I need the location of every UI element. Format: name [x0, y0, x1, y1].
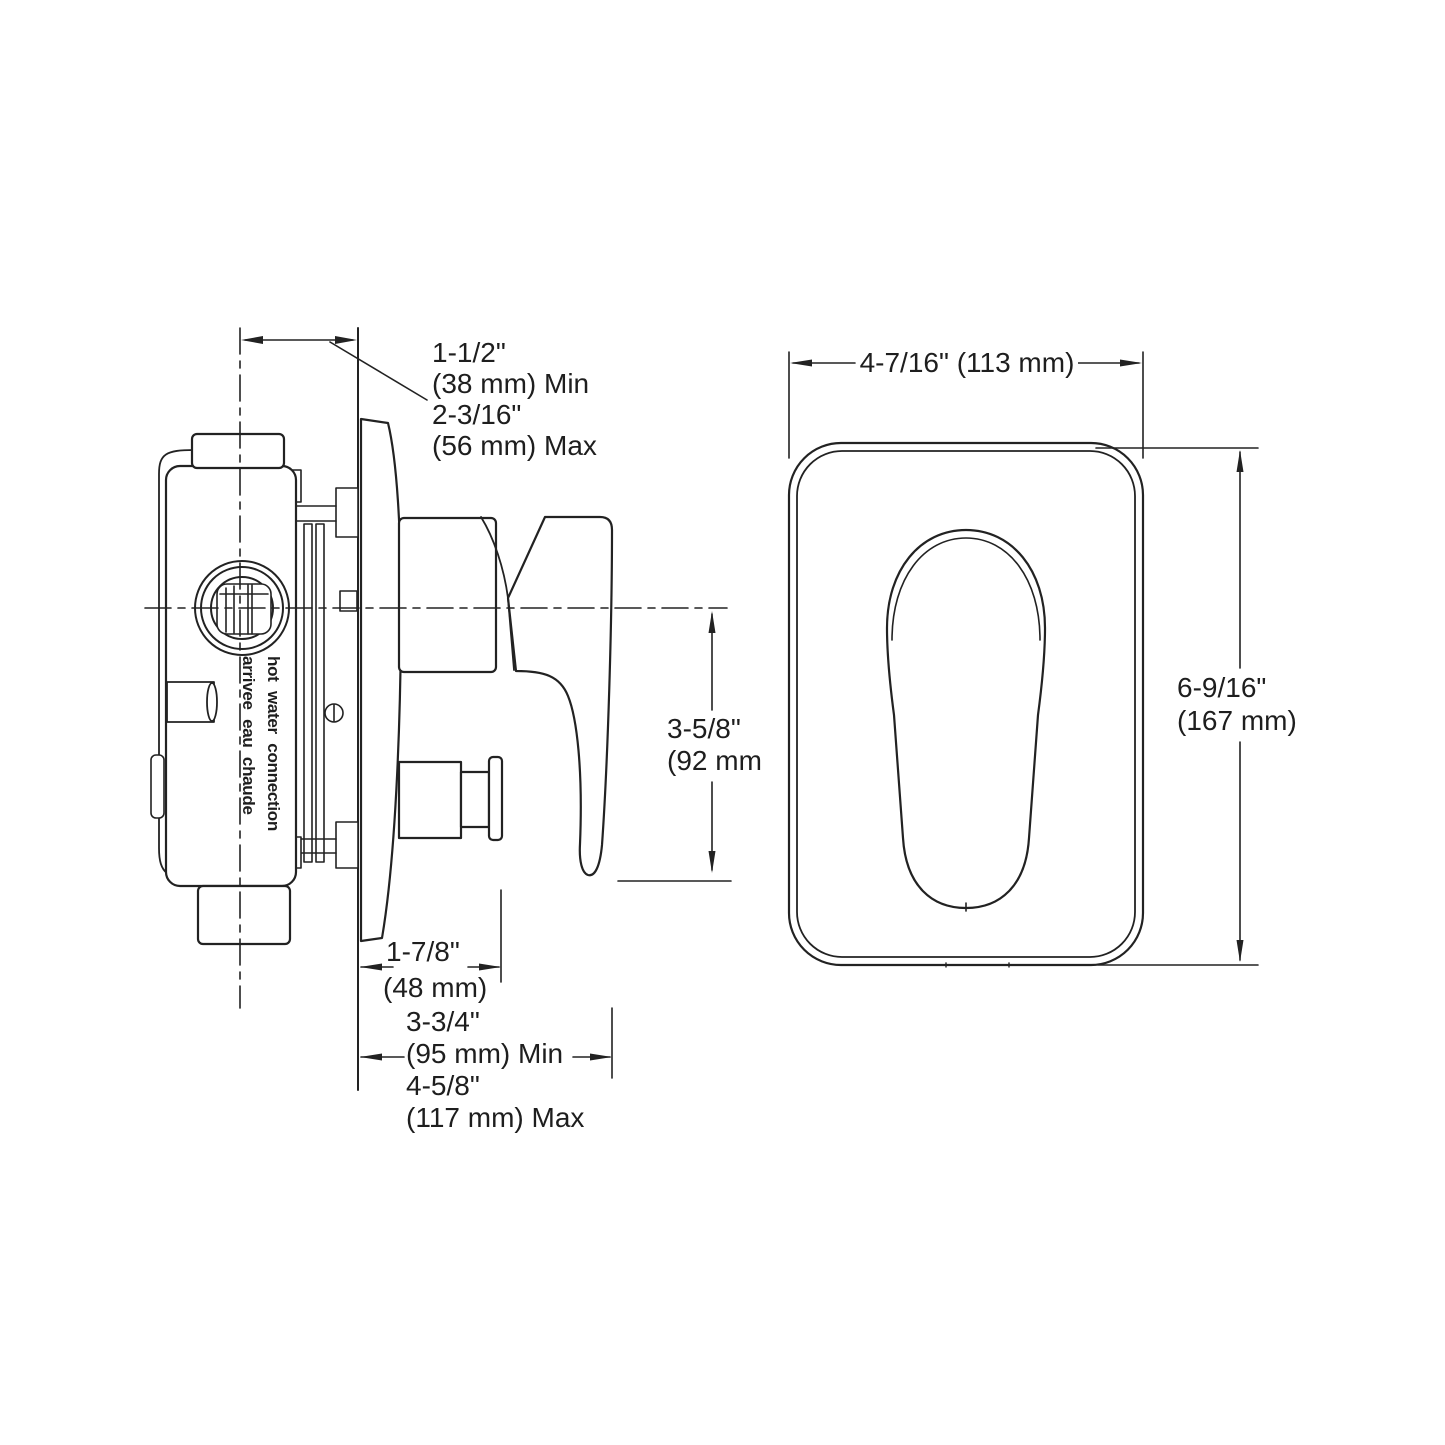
dim-line-4: (56 mm) Max — [432, 430, 597, 461]
dim-handle-projection-text: 3-3/4" (95 mm) Min 4-5/8" (117 mm) Max — [406, 1006, 584, 1134]
dim-line-1: 3-3/4" — [406, 1006, 584, 1038]
dim-line-3: 2-3/16" — [432, 399, 597, 430]
dim-line-2: (95 mm) Min — [406, 1038, 584, 1070]
dim-line-2: (167 mm) — [1177, 704, 1297, 737]
pipe-stub-top — [192, 434, 284, 468]
hot-water-connection-label: hot water connection arrivee eau chaude — [234, 656, 286, 824]
handle-front — [887, 530, 1045, 908]
dim-handle-drop-text: 3-5/8" (92 mm — [667, 713, 762, 777]
pipe-stub-bottom — [198, 886, 290, 944]
handle-lever-side — [508, 517, 612, 875]
dim-line-2: (92 mm — [667, 745, 762, 777]
leader-line — [330, 342, 427, 400]
technical-drawing-page: 1-1/2" (38 mm) Min 2-3/16" (56 mm) Max 4… — [0, 0, 1445, 1445]
diverter-button — [399, 757, 502, 840]
dim-button-projection-text-1: 1-7/8" — [386, 936, 460, 967]
bracket-tab — [151, 755, 164, 818]
dim-line-1: 6-9/16" — [1177, 671, 1297, 704]
mounting-bracket — [296, 488, 358, 868]
dim-line-1: 3-5/8" — [667, 713, 762, 745]
label-line-fr: arrivee eau chaude — [236, 656, 261, 824]
front-view — [789, 443, 1143, 967]
dim-wall-depth-graphics — [241, 336, 427, 400]
dim-button-projection-text-2: (48 mm) — [383, 972, 487, 1003]
dim-line-4: (117 mm) Max — [406, 1102, 584, 1134]
handle-hub-side — [399, 518, 496, 672]
label-line-en: hot water connection — [261, 656, 286, 824]
dim-line-3: 4-5/8" — [406, 1070, 584, 1102]
dim-line-2: (38 mm) Min — [432, 368, 597, 399]
side-port — [167, 682, 217, 722]
dim-wall-depth-text: 1-1/2" (38 mm) Min 2-3/16" (56 mm) Max — [432, 337, 597, 461]
dim-plate-width-text: 4-7/16" (113 mm) — [856, 348, 1078, 378]
dim-line-1: 1-1/2" — [432, 337, 597, 368]
dim-plate-height-text: 6-9/16" (167 mm) — [1177, 671, 1297, 737]
escutcheon-side — [361, 419, 401, 941]
